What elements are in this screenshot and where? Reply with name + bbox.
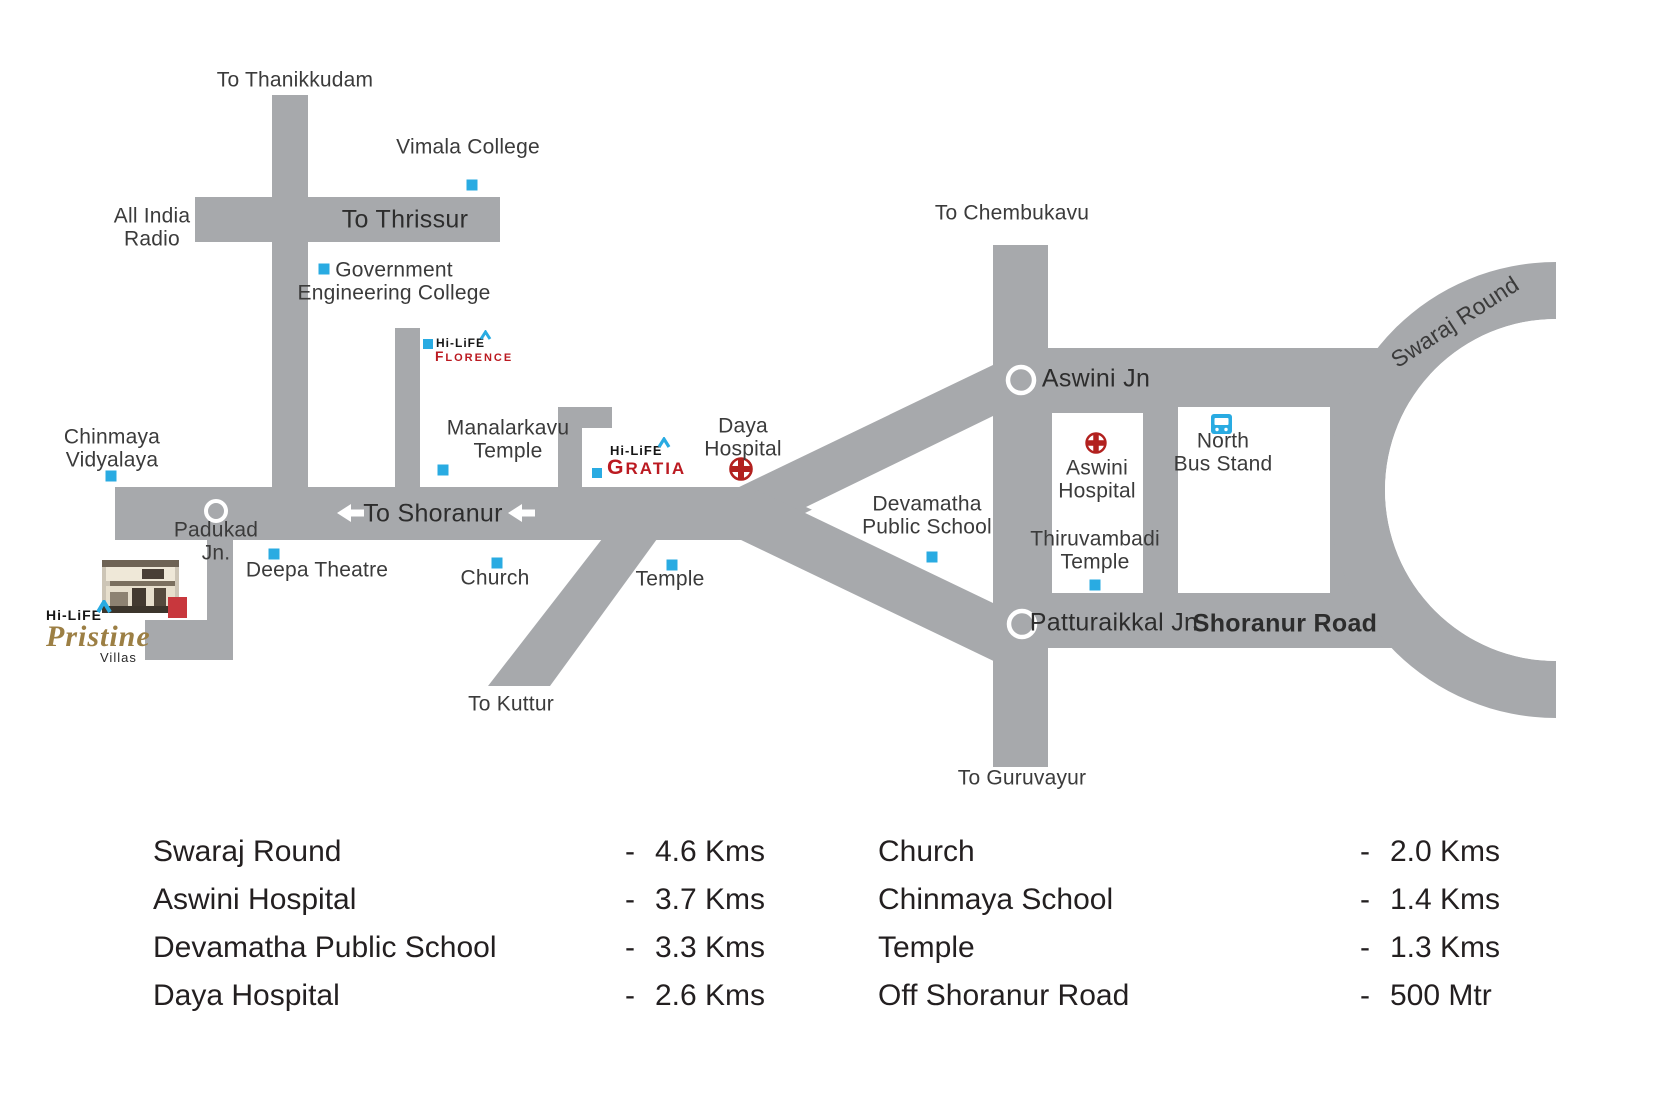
label-aswini-jn: Aswini Jn	[1042, 366, 1150, 393]
label-all-india-radio: All India Radio	[114, 205, 191, 250]
distance-row: Swaraj Round-4.6 Kms	[153, 828, 773, 876]
marker-chinmaya-vidyalaya	[106, 471, 117, 482]
distance-value: 3.7 Kms	[655, 883, 773, 917]
label-to-guruvayur: To Guruvayur	[958, 768, 1086, 791]
label-daya-hospital: Daya Hospital	[704, 415, 781, 460]
label-temple: Temple	[636, 569, 705, 592]
distance-separator: -	[625, 835, 655, 869]
roof-icon	[479, 330, 492, 340]
label-to-thanikkudam: To Thanikkudam	[217, 70, 374, 93]
distance-value: 1.4 Kms	[1390, 883, 1508, 917]
marker-church	[492, 558, 503, 569]
marker-deepa-theatre	[269, 549, 280, 560]
florence-project-text: FLORENCE	[435, 350, 513, 364]
label-to-kuttur: To Kuttur	[468, 694, 554, 717]
distance-value: 500 Mtr	[1390, 979, 1508, 1013]
distance-row: Daya Hospital-2.6 Kms	[153, 972, 773, 1020]
road-villas-stub	[145, 620, 233, 660]
distance-value: 2.6 Kms	[655, 979, 773, 1013]
road-to-guruvayur	[993, 645, 1048, 767]
distance-place: Church	[878, 835, 975, 869]
marker-thiruvambadi-temple	[1090, 580, 1101, 591]
aswini-hospital-cross-icon	[1086, 433, 1106, 453]
distance-value: 3.3 Kms	[655, 931, 773, 965]
label-to-thrissur: To Thrissur	[342, 207, 468, 234]
distance-table-right: Church-2.0 KmsChinmaya School-1.4 KmsTem…	[878, 828, 1508, 1020]
hilife-florence-logo: Hi-LiFE FLORENCE	[423, 330, 513, 364]
distance-separator: -	[1360, 835, 1390, 869]
hilife-gratia-logo: Hi-LiFE GRATIA	[592, 437, 686, 478]
label-manalarkavu-temple: Manalarkavu Temple	[447, 417, 569, 462]
marker-manalarkavu-temple	[438, 465, 449, 476]
red-block	[168, 597, 187, 618]
label-shoranur-road: Shoranur Road	[1193, 611, 1377, 638]
label-devamatha-public-school: Devamatha Public School	[862, 493, 992, 538]
label-to-shoranur: To Shoranur	[363, 501, 503, 528]
distance-row: Devamatha Public School-3.3 Kms	[153, 924, 773, 972]
distance-row: Chinmaya School-1.4 Kms	[878, 876, 1508, 924]
label-deepa-theatre: Deepa Theatre	[246, 560, 388, 583]
roof-icon	[96, 600, 112, 613]
label-north-bus-stand: North Bus Stand	[1174, 430, 1273, 475]
distance-value: 2.0 Kms	[1390, 835, 1508, 869]
distance-separator: -	[625, 931, 655, 965]
distance-row: Temple-1.3 Kms	[878, 924, 1508, 972]
road-to-kuttur	[488, 539, 657, 686]
distance-place: Swaraj Round	[153, 835, 341, 869]
hilife-pristine-logo: Hi-LiFE Pristine Villas	[46, 600, 151, 665]
distance-place: Daya Hospital	[153, 979, 340, 1013]
distance-row: Aswini Hospital-3.7 Kms	[153, 876, 773, 924]
distance-row: Off Shoranur Road-500 Mtr	[878, 972, 1508, 1020]
distance-place: Off Shoranur Road	[878, 979, 1129, 1013]
distance-place: Chinmaya School	[878, 883, 1113, 917]
distance-place: Temple	[878, 931, 975, 965]
marker-govt-engineering-college	[319, 264, 330, 275]
label-chinmaya-vidyalaya: Chinmaya Vidyalaya	[64, 426, 160, 471]
distance-separator: -	[625, 883, 655, 917]
daya-hospital-cross-icon	[730, 458, 752, 480]
road-to-thanikkudam	[272, 95, 308, 540]
label-church: Church	[461, 568, 530, 591]
gratia-project-text: GRATIA	[607, 457, 686, 478]
distance-row: Church-2.0 Kms	[878, 828, 1508, 876]
distance-separator: -	[1360, 883, 1390, 917]
roof-icon	[657, 437, 671, 448]
label-to-chembukavu: To Chembukavu	[935, 203, 1089, 226]
label-patturaikkal-jn: Patturaikkal Jn	[1030, 610, 1198, 637]
gratia-marker	[592, 468, 602, 478]
distance-separator: -	[1360, 931, 1390, 965]
hilife-brand-text: Hi-LiFE	[436, 337, 485, 349]
distance-place: Aswini Hospital	[153, 883, 356, 917]
distance-separator: -	[625, 979, 655, 1013]
label-vimala-college: Vimala College	[396, 137, 540, 160]
distance-value: 4.6 Kms	[655, 835, 773, 869]
marker-vimala-college	[467, 180, 478, 191]
road-to-chembukavu	[993, 245, 1048, 355]
florence-marker	[423, 339, 433, 349]
distance-place: Devamatha Public School	[153, 931, 497, 965]
label-thiruvambadi-temple: Thiruvambadi Temple	[1030, 528, 1160, 573]
distance-table-left: Swaraj Round-4.6 KmsAswini Hospital-3.7 …	[153, 828, 773, 1020]
pristine-project-text: Pristine	[46, 622, 151, 652]
label-aswini-hospital: Aswini Hospital	[1058, 457, 1135, 502]
location-map: To ThanikkudamVimala CollegeAll India Ra…	[0, 0, 1680, 1108]
distance-value: 1.3 Kms	[1390, 931, 1508, 965]
marker-devamatha-public-school	[927, 552, 938, 563]
distance-separator: -	[1360, 979, 1390, 1013]
roads-layer	[115, 95, 1556, 767]
marker-temple	[667, 560, 678, 571]
